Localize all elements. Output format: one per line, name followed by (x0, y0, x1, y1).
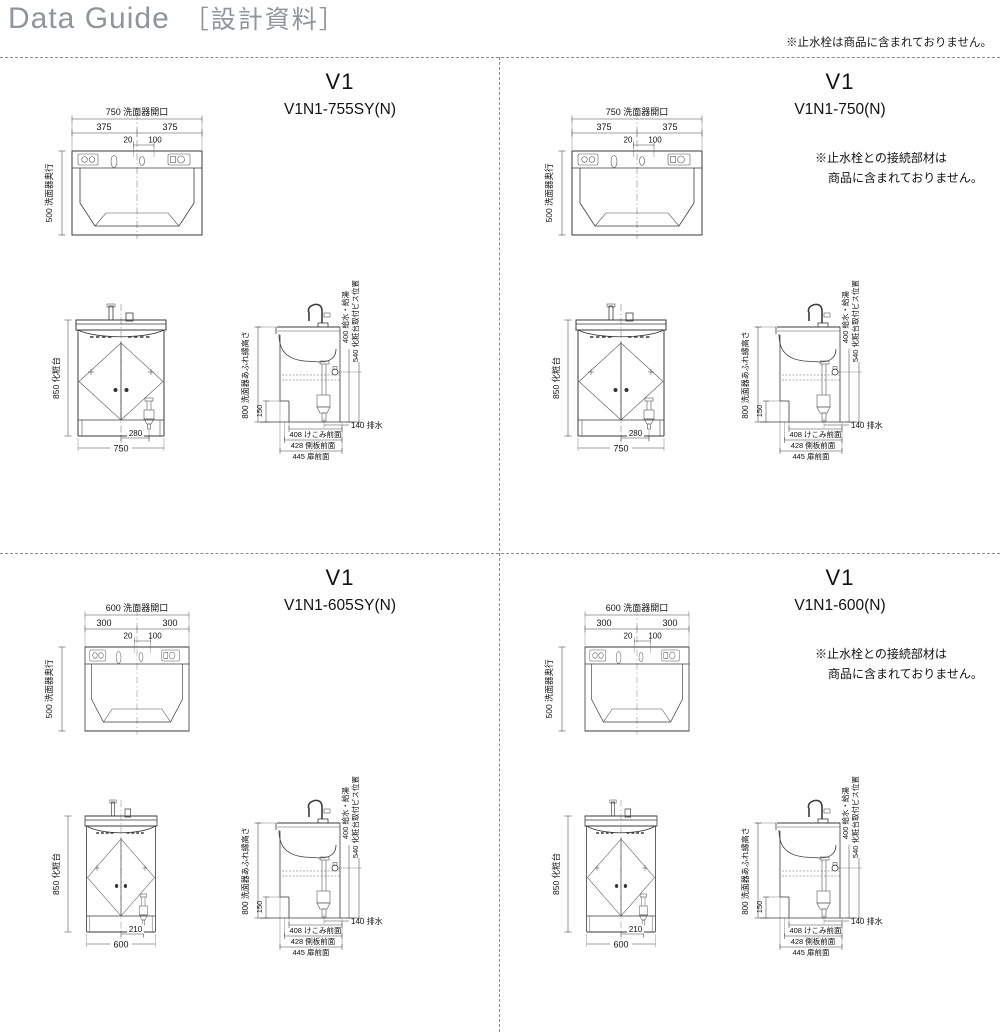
dim-drain: 140 排水 (851, 420, 883, 430)
side-view-drawing: 800 洗面器あふれ縁高さ 150 400 給水・給湯 540 化粧台取付ビス位… (732, 775, 897, 960)
dim-overflow-height: 800 洗面器あふれ縁高さ (740, 331, 750, 419)
dim-supply-height: 400 給水・給湯 (840, 786, 850, 839)
dim-drain-offset: 280 (129, 429, 143, 438)
dim-cabinet-height: 850 化粧台 (51, 357, 61, 399)
product-panel: V1 V1N1-600(N) ※止水栓との接続部材は 商品に含まれておりません。 (500, 553, 999, 1032)
dim-door-front: 445 扉前面 (792, 451, 830, 461)
side-view-drawing: 800 洗面器あふれ縁高さ 150 400 給水・給湯 540 化粧台取付ビス位… (232, 775, 397, 960)
dim-basin-depth: 500 洗面器奥行 (44, 163, 54, 223)
page-title-en: Data Guide (8, 2, 170, 35)
dim-offset-100: 100 (648, 136, 662, 145)
dim-offset-20: 20 (624, 632, 633, 641)
dim-screw-position: 540 化粧台取付ビス位置 (350, 279, 360, 362)
product-panel: V1 V1N1-605SY(N) (0, 553, 499, 1032)
front-view-drawing: 210 600 850 化粧台 (548, 798, 723, 958)
plan-geometry (572, 113, 702, 239)
connection-note: ※止水栓との接続部材は 商品に含まれておりません。 (815, 149, 983, 189)
dim-screw-position: 540 化粧台取付ビス位置 (850, 279, 860, 362)
dim-cabinet-width: 600 (613, 940, 628, 950)
dim-half-right: 300 (162, 618, 177, 628)
series-title: V1 (190, 69, 490, 95)
dim-half-left: 375 (96, 122, 111, 132)
series-title: V1 (690, 69, 990, 95)
dim-kick-front: 408 けこみ前面 (289, 429, 342, 439)
header-note: ※止水栓は商品に含まれておりません。 (786, 34, 992, 50)
connection-note: ※止水栓との接続部材は 商品に含まれておりません。 (815, 645, 983, 685)
front-geometry (576, 304, 666, 451)
page-title: Data Guide［設計資料］ (8, 0, 346, 36)
dim-door-front: 445 扉前面 (792, 947, 830, 957)
dim-cabinet-height: 850 化粧台 (51, 853, 61, 895)
dim-screw-position: 540 化粧台取付ビス位置 (850, 775, 860, 858)
dim-drain: 140 排水 (851, 916, 883, 926)
connection-note-line1: ※止水栓との接続部材は (815, 149, 983, 169)
dim-side-panel-front: 428 側板前面 (291, 440, 336, 450)
dim-half-left: 375 (596, 122, 611, 132)
side-view-drawing: 800 洗面器あふれ縁高さ 150 400 給水・給湯 540 化粧台取付ビス位… (732, 279, 897, 464)
dim-half-left: 300 (96, 618, 111, 628)
dim-offset-20: 20 (124, 136, 133, 145)
dim-overflow-height: 800 洗面器あふれ縁高さ (740, 827, 750, 915)
series-title: V1 (690, 565, 990, 591)
dim-basin-opening: 750 洗面器開口 (606, 106, 669, 117)
dim-side-panel-front: 428 側板前面 (291, 936, 336, 946)
data-guide-page: Data Guide［設計資料］ ※止水栓は商品に含まれておりません。 V1 V… (0, 0, 1000, 1032)
dim-basin-opening: 750 洗面器開口 (106, 106, 169, 117)
dim-drain-offset: 280 (629, 429, 643, 438)
dim-cabinet-width: 600 (113, 940, 128, 950)
plan-view-drawing: 750 洗面器開口 375 375 20 100 500 洗面器奥行 (542, 105, 722, 240)
side-view-drawing: 800 洗面器あふれ縁高さ 150 400 給水・給湯 540 化粧台取付ビス位… (232, 279, 397, 464)
front-geometry (76, 304, 166, 451)
dim-drain: 140 排水 (351, 916, 383, 926)
model-number: V1N1-755SY(N) (190, 101, 490, 119)
dim-overflow-height: 800 洗面器あふれ縁高さ (240, 827, 250, 915)
dim-offset-20: 20 (124, 632, 133, 641)
model-number: V1N1-600(N) (690, 597, 990, 615)
model-number: V1N1-605SY(N) (190, 597, 490, 615)
dim-cabinet-height: 850 化粧台 (551, 853, 561, 895)
plan-view-drawing: 600 洗面器開口 300 300 20 100 500 洗面器奥行 (542, 601, 722, 736)
connection-note-line2: 商品に含まれておりません。 (828, 169, 983, 189)
dim-basin-depth: 500 洗面器奥行 (44, 659, 54, 719)
dim-side-panel-front: 428 側板前面 (791, 936, 836, 946)
connection-note-line1: ※止水栓との接続部材は (815, 645, 983, 665)
dim-cabinet-width: 750 (613, 444, 628, 454)
dim-side-panel-front: 428 側板前面 (791, 440, 836, 450)
product-panel: V1 V1N1-755SY(N) (0, 57, 499, 553)
dim-cabinet-width: 750 (113, 444, 128, 454)
dim-kick-height: 150 (755, 405, 764, 418)
model-number: V1N1-750(N) (690, 101, 990, 119)
dim-offset-100: 100 (148, 136, 162, 145)
dim-supply-height: 400 給水・給湯 (340, 786, 350, 839)
dim-drain-offset: 210 (629, 925, 643, 934)
dim-basin-depth: 500 洗面器奥行 (544, 659, 554, 719)
dim-offset-100: 100 (648, 632, 662, 641)
dim-supply-height: 400 給水・給湯 (340, 290, 350, 343)
dim-half-right: 375 (162, 122, 177, 132)
page-title-ja: ［設計資料］ (184, 6, 346, 34)
series-title: V1 (190, 565, 490, 591)
dim-kick-front: 408 けこみ前面 (289, 925, 342, 935)
dim-kick-height: 150 (755, 901, 764, 914)
dim-offset-20: 20 (624, 136, 633, 145)
dim-drain-offset: 210 (129, 925, 143, 934)
front-geometry (85, 800, 157, 947)
plan-view-drawing: 750 洗面器開口 375 375 20 100 500 洗面器奥行 (42, 105, 222, 240)
plan-geometry (72, 113, 202, 239)
product-panel: V1 V1N1-750(N) ※止水栓との接続部材は 商品に含まれておりません。 (500, 57, 999, 553)
dim-basin-opening: 600 洗面器開口 (106, 602, 169, 613)
connection-note-line2: 商品に含まれておりません。 (828, 665, 983, 685)
front-view-drawing: 280 750 850 化粧台 (48, 302, 223, 462)
front-view-drawing: 280 750 850 化粧台 (548, 302, 723, 462)
dim-half-right: 375 (662, 122, 677, 132)
dim-screw-position: 540 化粧台取付ビス位置 (350, 775, 360, 858)
dim-overflow-height: 800 洗面器あふれ縁高さ (240, 331, 250, 419)
dim-supply-height: 400 給水・給湯 (840, 290, 850, 343)
dim-offset-100: 100 (148, 632, 162, 641)
dim-drain: 140 排水 (351, 420, 383, 430)
dim-door-front: 445 扉前面 (292, 947, 330, 957)
dim-kick-front: 408 けこみ前面 (789, 925, 842, 935)
dim-basin-depth: 500 洗面器奥行 (544, 163, 554, 223)
front-geometry (585, 800, 657, 947)
dim-kick-height: 150 (255, 901, 264, 914)
dim-cabinet-height: 850 化粧台 (551, 357, 561, 399)
dim-basin-opening: 600 洗面器開口 (606, 602, 669, 613)
dim-kick-front: 408 けこみ前面 (789, 429, 842, 439)
dim-half-right: 300 (662, 618, 677, 628)
dim-door-front: 445 扉前面 (292, 451, 330, 461)
dim-half-left: 300 (596, 618, 611, 628)
dim-kick-height: 150 (255, 405, 264, 418)
front-view-drawing: 210 600 850 化粧台 (48, 798, 223, 958)
plan-view-drawing: 600 洗面器開口 300 300 20 100 500 洗面器奥行 (42, 601, 222, 736)
